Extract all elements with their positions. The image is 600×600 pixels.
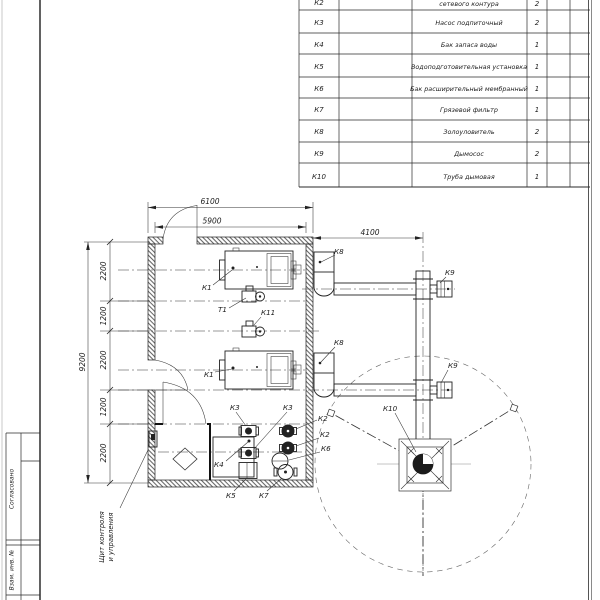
pump-k3-upper [239, 426, 259, 437]
label-t1: Т1 [218, 305, 227, 314]
table-row: К2 сетевого контура 2 [314, 0, 539, 8]
row-pos: К4 [314, 41, 323, 49]
row-name: Грязевой фильтр [440, 106, 498, 114]
row-pos: К6 [314, 85, 324, 93]
dim-outer-width: 6100 [200, 197, 219, 206]
boiler-bottom [220, 348, 302, 389]
label-k9-bottom: К9 [448, 361, 458, 370]
row-pos: К8 [314, 128, 324, 136]
pump-k11 [242, 321, 265, 337]
door-top [163, 205, 197, 239]
row-qty: 1 [535, 106, 539, 114]
row-pos: К10 [312, 173, 326, 181]
pump-k2-upper [280, 425, 297, 438]
row-qty: 1 [535, 85, 539, 93]
row-name: Бак расширительный мембранный [410, 85, 528, 93]
pump-k3-lower [239, 448, 259, 459]
pump-t1 [242, 286, 265, 302]
label-k1-bottom: К1 [204, 370, 214, 379]
row-qty: 2 [535, 150, 540, 158]
boiler-top [220, 248, 302, 289]
table-row: К8 Золоуловитель 2 [314, 128, 539, 136]
ash-collector-top [314, 252, 334, 272]
dim-seg3: 2200 [99, 350, 108, 369]
flue-ducts [314, 252, 452, 452]
label-k2-top: К2 [318, 414, 328, 423]
label-k11: К11 [261, 308, 275, 317]
dim-seg1: 2200 [99, 261, 108, 280]
wall-right [306, 244, 313, 480]
table-row: К5 Водоподготовительная установка 1 [314, 63, 539, 71]
table-row: К6 Бак расширительный мембранный 1 [314, 85, 539, 93]
door-left [155, 360, 188, 390]
label-k10: К10 [383, 404, 398, 413]
row-pos: К7 [314, 106, 324, 114]
pump-k2-lower [280, 442, 297, 455]
spec-table: К2 сетевого контура 2 К3 Насос подпиточн… [299, 0, 590, 187]
stamp-replace-inv: Взам. инв. № [9, 550, 16, 591]
row-qty: 1 [535, 63, 539, 71]
extension-lines-left [84, 242, 150, 483]
dim-inner-width: 5900 [202, 217, 221, 226]
row-qty: 2 [535, 19, 540, 27]
title-block-strip: Согласовано Взам. инв. № [6, 433, 40, 600]
row-pos: К3 [314, 19, 323, 27]
floor-drain [173, 448, 197, 470]
spec-table-grid [299, 0, 590, 187]
row-name: Бак запаса воды [441, 41, 497, 49]
row-pos: К2 [314, 0, 324, 7]
dim-flue-offset: 4100 [360, 228, 379, 237]
dim-seg5: 2200 [99, 443, 108, 462]
label-k2-bottom: К2 [320, 430, 330, 439]
wall-left-upper [148, 244, 155, 360]
row-qty: 1 [535, 41, 539, 49]
row-pos: К9 [314, 150, 324, 158]
callout-line2: и управления [107, 512, 115, 561]
row-name: Труба дымовая [443, 173, 495, 181]
label-k3-left: К3 [230, 403, 240, 412]
equipment [149, 248, 301, 480]
label-k9-top: К9 [445, 268, 455, 277]
tank-k4 [213, 437, 254, 477]
row-name: сетевого контура [439, 0, 499, 8]
table-row: К10 Труба дымовая 1 [312, 173, 539, 181]
label-k6: К6 [321, 444, 331, 453]
chimney-foundation [377, 439, 471, 491]
dim-seg2: 1200 [99, 306, 108, 325]
wall-top [197, 237, 313, 244]
row-qty: 2 [535, 0, 540, 8]
label-k8-bottom: К8 [334, 338, 344, 347]
row-name: Дымосос [453, 150, 484, 158]
callout-line1: Щит контроля [98, 511, 106, 563]
drawing-sheet: К2 сетевого контура 2 К3 Насос подпиточн… [0, 0, 600, 600]
partition-wall [155, 382, 211, 480]
row-pos: К5 [314, 63, 324, 71]
control-panel-callout: Щит контроля и управления [98, 450, 148, 563]
guy-anchor-left [327, 409, 335, 417]
table-row: К9 Дымосос 2 [314, 150, 539, 158]
table-row: К4 Бак запаса воды 1 [314, 41, 539, 49]
label-k7: К7 [259, 491, 269, 500]
flue-elbow-bottom [314, 373, 334, 397]
flue-elbow-top [314, 272, 334, 296]
stamp-approved: Согласовано [9, 469, 16, 510]
label-k8-top: К8 [334, 247, 344, 256]
boiler-room-plan-svg: К2 сетевого контура 2 К3 Насос подпиточн… [0, 0, 600, 600]
row-qty: 1 [535, 173, 539, 181]
dim-seg4: 1200 [99, 397, 108, 416]
table-row: К7 Грязевой фильтр 1 [314, 106, 539, 114]
label-k4: К4 [214, 460, 224, 469]
row-name: Водоподготовительная установка [411, 63, 527, 71]
dim-overall-height: 9200 [78, 352, 87, 371]
row-qty: 2 [535, 128, 540, 136]
label-k5: К5 [226, 491, 236, 500]
wall-bottom [148, 480, 313, 487]
label-k1-top: К1 [202, 283, 212, 292]
ash-collector-bottom [314, 353, 334, 373]
label-k3-right: К3 [283, 403, 293, 412]
table-row: К3 Насос подпиточный 2 [314, 19, 539, 27]
row-name: Насос подпиточный [435, 19, 502, 27]
row-name: Золоуловитель [443, 128, 494, 136]
